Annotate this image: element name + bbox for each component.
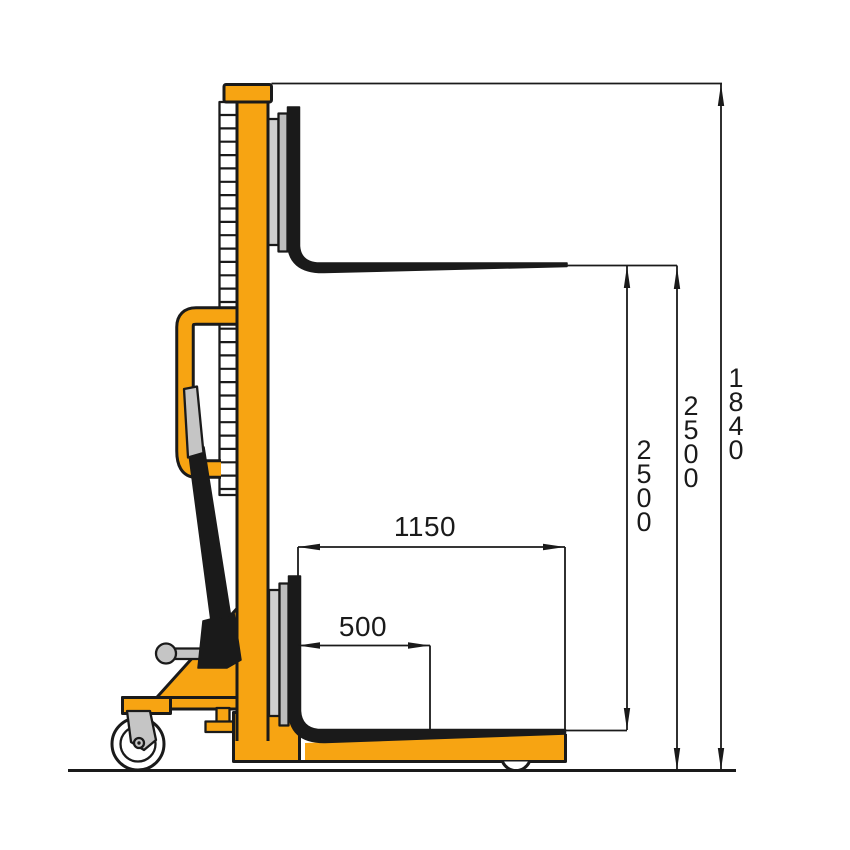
lowered-carriage-plate-inner <box>280 584 289 726</box>
raised-carriage-plate-inner <box>279 114 288 252</box>
dim-label-overall-height: 1840 <box>725 366 747 462</box>
arrow-down-1840 <box>718 748 724 770</box>
raised-carriage-plate-outer <box>268 119 279 245</box>
arrow-down-2500-outer <box>674 748 680 770</box>
dim-label-lift-travel: 2500 <box>633 438 655 534</box>
arrow-up-2500-outer <box>674 267 680 289</box>
raised-fork <box>288 107 568 273</box>
dim-label-max-lift-height: 2500 <box>680 394 702 490</box>
arrow-left-500 <box>298 642 320 648</box>
arrow-right-500 <box>408 642 430 648</box>
arrow-up-2500-inner <box>624 266 630 288</box>
lowered-fork <box>289 576 566 743</box>
dim-label-load-center: 500 <box>330 611 396 643</box>
mast-column <box>237 100 268 741</box>
arrow-up-1840 <box>718 84 724 106</box>
caster-axle-dot <box>137 741 140 744</box>
stacker-dimension-diagram: 1150 500 2500 2500 1840 <box>0 0 850 850</box>
arrow-left-1150 <box>298 544 320 550</box>
lowered-carriage-plate-outer <box>269 590 280 716</box>
stacker-drawing <box>0 0 850 850</box>
hydraulic-pump <box>198 613 241 668</box>
dim-label-fork-length: 1150 <box>386 511 464 543</box>
arrow-down-2500-inner <box>624 708 630 730</box>
mast-cap <box>224 85 272 103</box>
release-rod-knob <box>156 644 176 664</box>
lever-grip <box>184 387 204 458</box>
arrow-right-1150 <box>543 544 565 550</box>
